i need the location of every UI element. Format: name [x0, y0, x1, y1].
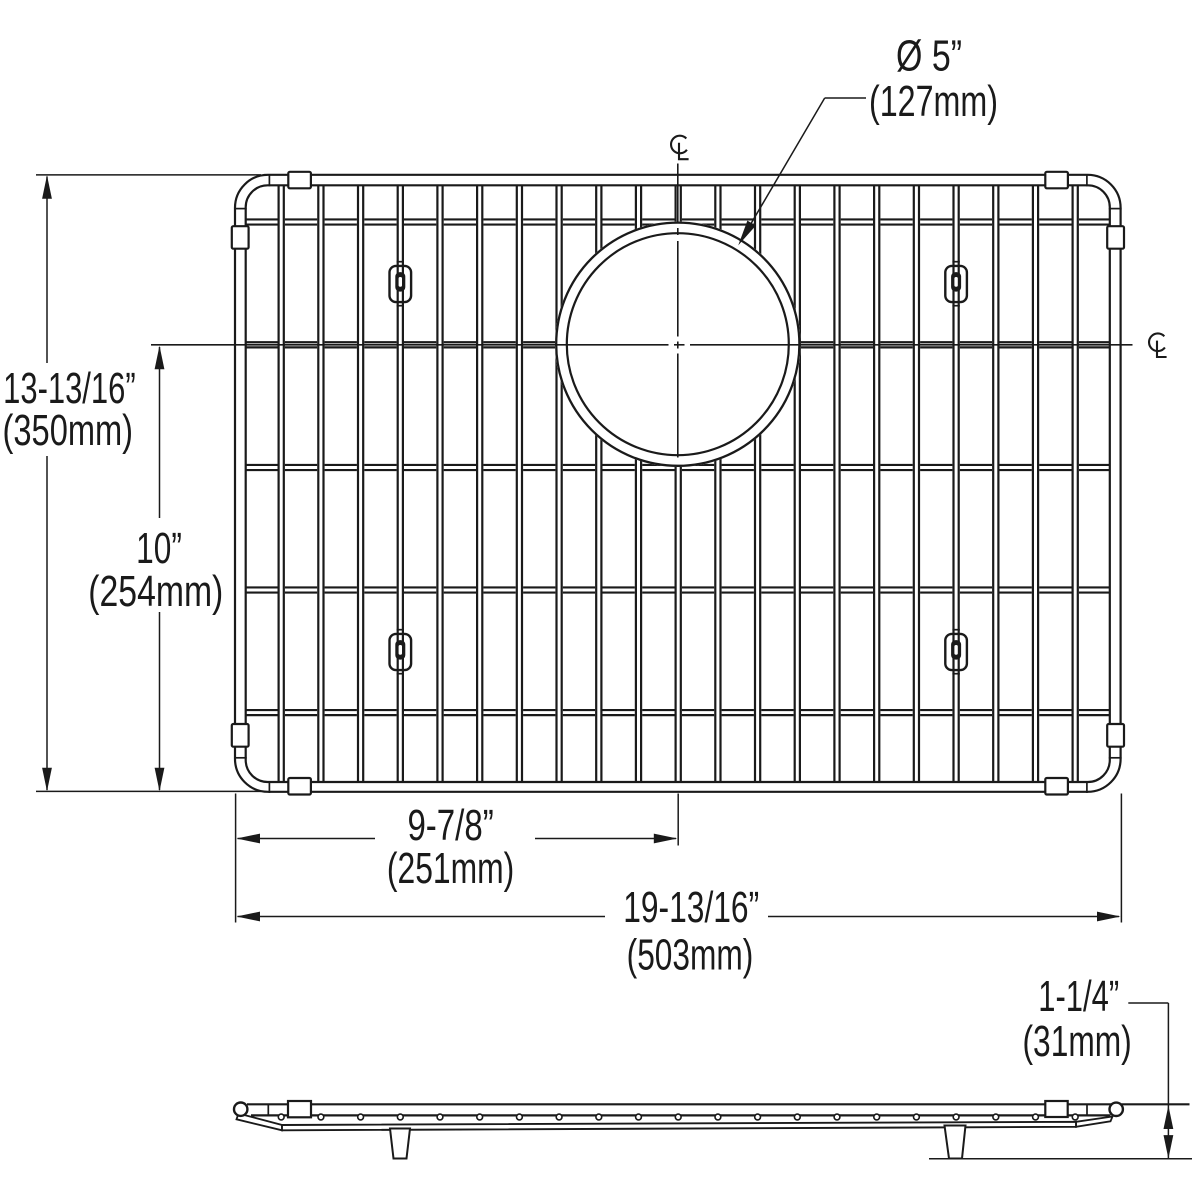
- svg-text:9-7/8”: 9-7/8”: [407, 801, 493, 850]
- svg-text:(127mm): (127mm): [869, 77, 998, 126]
- svg-text:(254mm): (254mm): [88, 567, 223, 616]
- svg-text:Ø 5”: Ø 5”: [896, 32, 962, 81]
- svg-text:10”: 10”: [136, 524, 182, 573]
- svg-text:(251mm): (251mm): [387, 844, 514, 893]
- svg-text:(350mm): (350mm): [3, 406, 134, 455]
- svg-text:(31mm): (31mm): [1023, 1017, 1132, 1066]
- svg-text:1-1/4”: 1-1/4”: [1038, 972, 1119, 1021]
- svg-text:(503mm): (503mm): [627, 931, 754, 980]
- svg-text:19-13/16”: 19-13/16”: [623, 883, 759, 932]
